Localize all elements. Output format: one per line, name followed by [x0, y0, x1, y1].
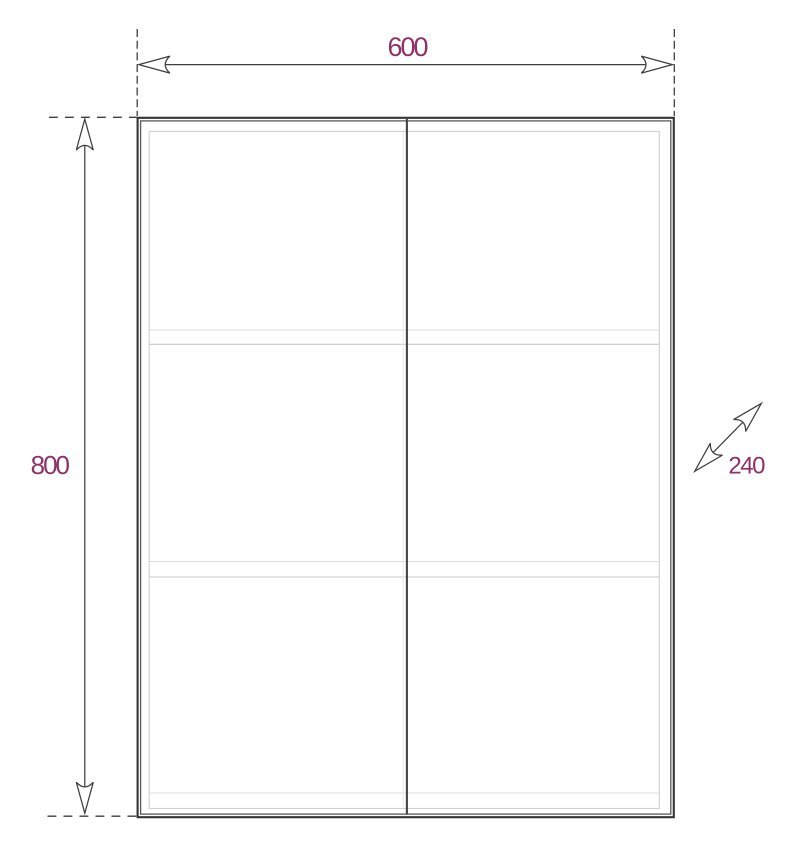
svg-text:600: 600 — [387, 32, 427, 62]
svg-text:240: 240 — [728, 452, 765, 479]
svg-text:800: 800 — [31, 450, 70, 480]
